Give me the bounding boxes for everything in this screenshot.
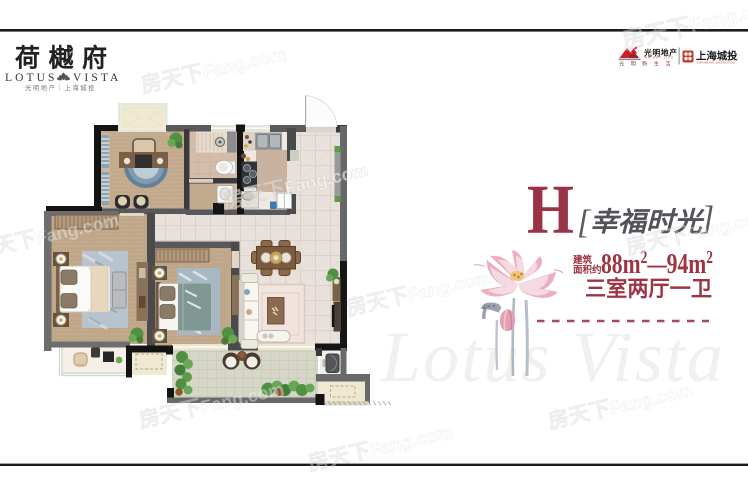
- svg-text:H: H: [527, 172, 574, 249]
- svg-text:LOTUS: LOTUS: [5, 72, 58, 84]
- svg-text:BRIGHT LIFE: BRIGHT LIFE: [645, 55, 674, 59]
- svg-text:光明地产｜上海城投: 光明地产｜上海城投: [25, 83, 96, 92]
- svg-text:面积约: 面积约: [573, 264, 602, 276]
- svg-text:SHANGHAI CHENGTOU: SHANGHAI CHENGTOU: [697, 61, 736, 65]
- svg-text:三室两厅一卫: 三室两厅一卫: [585, 276, 712, 301]
- svg-text:VISTA: VISTA: [73, 72, 121, 84]
- svg-text:光明新生活: 光明新生活: [619, 59, 677, 67]
- svg-text:荷樾府: 荷樾府: [15, 44, 116, 73]
